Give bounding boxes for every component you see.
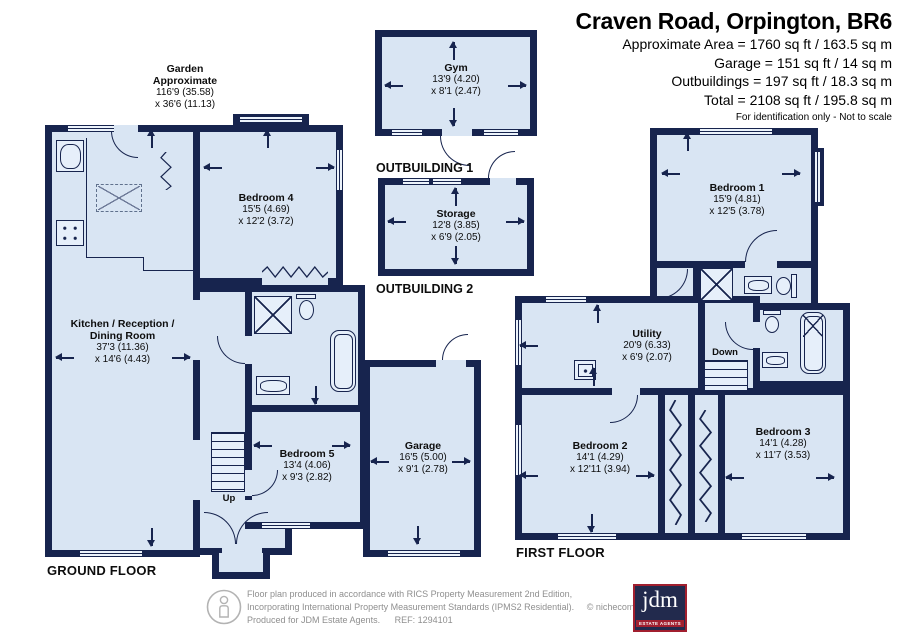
hallway xyxy=(193,285,252,555)
bifold-door-zigzag xyxy=(262,266,328,278)
measure-arrow xyxy=(448,106,460,128)
window xyxy=(403,178,429,185)
measure-arrow xyxy=(660,168,682,180)
measure-arrow xyxy=(314,162,336,174)
stove-fixture xyxy=(56,220,84,246)
room-label-bedroom2: Bedroom 2 14'1 (4.29) x 12'11 (3.94) xyxy=(538,440,662,475)
measure-arrow xyxy=(682,131,694,153)
window xyxy=(262,522,310,529)
bathtub-fixture xyxy=(330,330,356,392)
stairs-down-label: Down xyxy=(701,347,749,358)
room-label-bedroom1: Bedroom 1 15'9 (4.81) x 12'5 (3.78) xyxy=(677,182,797,217)
window xyxy=(80,550,142,557)
room-label-bedroom3: Bedroom 3 14'1 (4.28) x 11'7 (3.53) xyxy=(722,426,844,461)
outbuilding1-label: OUTBUILDING 1 xyxy=(376,161,473,175)
measure-arrow xyxy=(262,128,274,150)
floorplan-page: Craven Road, Orpington, BR6 Approximate … xyxy=(0,0,900,636)
measure-arrow xyxy=(586,512,598,534)
measure-arrow xyxy=(146,526,158,548)
toilet-fixture xyxy=(776,277,791,295)
window xyxy=(240,116,302,123)
disclaimer-note: For identification only - Not to scale xyxy=(576,112,892,123)
measure-arrow xyxy=(448,40,460,62)
kitchen-island-cross xyxy=(98,186,140,210)
shower-fixture xyxy=(700,268,733,301)
window xyxy=(392,129,422,136)
door-opening xyxy=(753,322,760,348)
measure-arrow xyxy=(780,168,802,180)
counter-line xyxy=(86,138,87,258)
nichecom-person-icon xyxy=(205,587,243,627)
door-opening xyxy=(222,548,262,555)
first-floor-label: FIRST FLOOR xyxy=(516,545,605,560)
measure-arrow xyxy=(814,472,836,484)
door-arc xyxy=(442,334,468,360)
garden-label: Garden Approximate 116'9 (35.58) x 36'6 … xyxy=(120,63,250,110)
kitchen-sink-fixture xyxy=(56,140,84,172)
window xyxy=(742,533,806,540)
window xyxy=(68,125,114,132)
header: Craven Road, Orpington, BR6 Approximate … xyxy=(576,8,892,123)
measure-arrow xyxy=(450,244,462,266)
stairs-up-label: Up xyxy=(214,493,244,504)
counter-line xyxy=(143,270,193,271)
outbuilding2-label: OUTBUILDING 2 xyxy=(376,282,473,296)
toilet-fixture xyxy=(299,300,314,320)
sink-fixture xyxy=(256,376,290,395)
door-opening xyxy=(245,336,252,364)
sink-fixture xyxy=(744,276,772,294)
window xyxy=(515,425,522,475)
wall-opening xyxy=(193,440,200,500)
door-opening xyxy=(490,178,516,185)
counter-line xyxy=(143,257,144,271)
door-opening xyxy=(612,388,640,395)
shower-over-bath-cross xyxy=(803,315,823,337)
window xyxy=(814,152,821,202)
window xyxy=(484,129,518,136)
counter-line xyxy=(86,257,144,258)
measure-arrow xyxy=(724,472,746,484)
toilet-fixture xyxy=(296,294,316,299)
staircase-down xyxy=(704,360,748,391)
area-line: Approximate Area = 1760 sq ft / 163.5 sq… xyxy=(576,35,892,54)
measure-arrow xyxy=(588,366,600,388)
measure-arrow xyxy=(518,470,540,482)
room-label-gym: Gym 13'9 (4.20) x 8'1 (2.47) xyxy=(398,62,514,97)
measure-arrow xyxy=(310,384,322,406)
bifold-door-zigzag xyxy=(160,152,172,190)
room-label-storage: Storage 12'8 (3.85) x 6'9 (2.05) xyxy=(398,208,514,243)
door-opening xyxy=(245,470,252,496)
wardrobe-zigzag xyxy=(699,410,712,522)
ground-floor-label: GROUND FLOOR xyxy=(47,563,156,578)
sink-fixture xyxy=(762,352,788,368)
jdm-logo: jdm ESTATE AGENTS xyxy=(633,584,687,632)
room-label-utility: Utility 20'9 (6.33) x 6'9 (2.07) xyxy=(588,328,706,363)
toilet-fixture xyxy=(763,310,781,315)
room-bedroom3 xyxy=(718,388,850,540)
door-arc xyxy=(488,151,515,178)
measure-arrow xyxy=(202,162,224,174)
area-line: Outbuildings = 197 sq ft / 18.3 sq m xyxy=(576,72,892,91)
measure-arrow xyxy=(146,128,158,150)
room-label-bedroom5: Bedroom 5 13'4 (4.06) x 9'3 (2.82) xyxy=(252,448,362,483)
measure-arrow xyxy=(592,303,604,325)
window xyxy=(700,128,772,135)
toilet-fixture xyxy=(791,274,797,298)
measure-arrow xyxy=(412,524,424,546)
reference-number: REF: 1294101 xyxy=(395,615,453,625)
window xyxy=(388,550,460,557)
footer-disclaimer: Floor plan produced in accordance with R… xyxy=(247,588,659,627)
window xyxy=(546,296,586,303)
staircase-up xyxy=(211,432,245,492)
measure-arrow xyxy=(518,340,540,352)
area-line: Total = 2108 sq ft / 195.8 sq m xyxy=(576,91,892,110)
room-label-kitchen: Kitchen / Reception / Dining Room 37'3 (… xyxy=(50,318,195,365)
measure-arrow xyxy=(450,186,462,208)
area-line: Garage = 151 sq ft / 14 sq m xyxy=(576,54,892,73)
wall xyxy=(688,395,695,533)
toilet-fixture xyxy=(765,316,779,333)
wardrobe-zigzag xyxy=(669,400,682,525)
door-opening xyxy=(262,278,328,285)
shower-fixture xyxy=(254,296,292,334)
room-label-garage: Garage 16'5 (5.00) x 9'1 (2.78) xyxy=(368,440,478,475)
porch xyxy=(212,553,270,579)
room-label-bedroom4: Bedroom 4 15'5 (4.69) x 12'2 (3.72) xyxy=(196,192,336,227)
door-opening xyxy=(436,360,466,367)
door-opening xyxy=(745,261,777,268)
page-title: Craven Road, Orpington, BR6 xyxy=(576,8,892,35)
